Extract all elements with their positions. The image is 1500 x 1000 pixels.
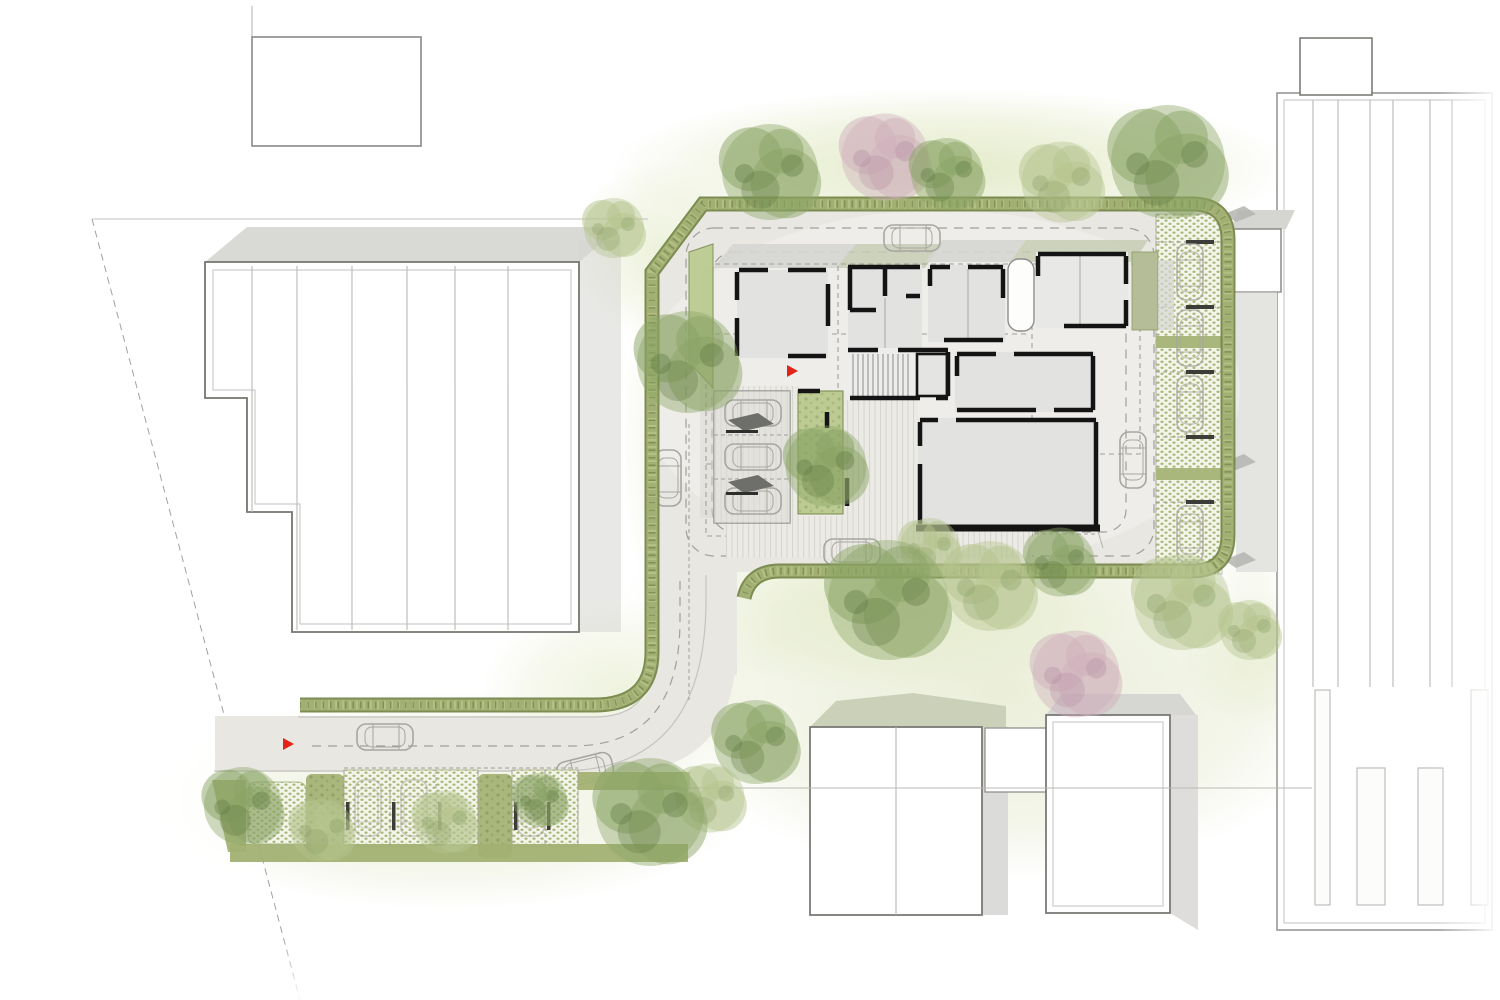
east-hall-north-block <box>1300 38 1372 95</box>
site-plan-drawing: Architectural site plan — ground floor <box>0 0 1500 1000</box>
east-yard-strip <box>1236 292 1277 572</box>
house2-side-shadow <box>1170 715 1198 930</box>
roof-shadow-east <box>579 240 621 632</box>
roof-shadow <box>205 227 621 262</box>
green-divider <box>1156 336 1222 348</box>
site-plan-canvas: Architectural site plan — ground floor <box>0 0 1500 1000</box>
green-roof-strip <box>1132 252 1158 330</box>
carport <box>714 391 790 523</box>
annex-footprint <box>1231 229 1281 292</box>
cottage-footprint <box>252 37 421 146</box>
house-connector <box>985 728 1046 792</box>
building-northwest-hall <box>205 227 621 632</box>
green-divider <box>1156 468 1222 480</box>
buildings-south-houses <box>810 693 1198 930</box>
hall-footprint <box>205 262 579 632</box>
house2-footprint <box>1046 715 1170 913</box>
building-north-cottage <box>252 6 421 146</box>
elevator <box>917 354 947 396</box>
entry-canopy <box>1008 259 1034 331</box>
